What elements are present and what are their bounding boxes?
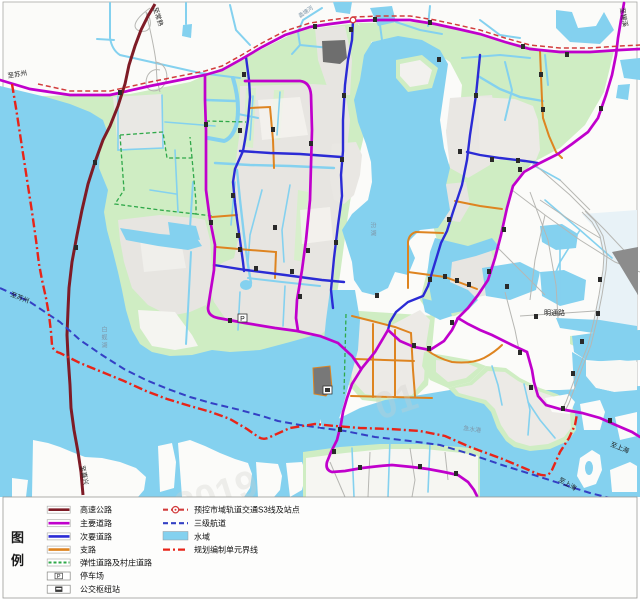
svg-text:图: 图 (11, 530, 24, 545)
svg-text:高速公路: 高速公路 (80, 505, 112, 515)
svg-text:白蚬湖: 白蚬湖 (100, 325, 107, 350)
svg-text:明通路: 明通路 (544, 308, 565, 317)
svg-text:次要道路: 次要道路 (80, 531, 112, 541)
svg-text:公交枢纽站: 公交枢纽站 (80, 584, 120, 594)
svg-text:规划编制单元界线: 规划编制单元界线 (194, 545, 258, 555)
svg-text:支路: 支路 (80, 545, 96, 555)
svg-text:弹性道路及村庄道路: 弹性道路及村庄道路 (80, 558, 152, 568)
svg-text:P: P (240, 316, 245, 323)
svg-text:主要道路: 主要道路 (80, 518, 112, 528)
svg-text:水域: 水域 (194, 531, 210, 541)
svg-text:三级航道: 三级航道 (194, 518, 226, 528)
svg-text:预控市域轨道交通S3线及站点: 预控市域轨道交通S3线及站点 (194, 505, 300, 515)
svg-text:停车场: 停车场 (80, 571, 104, 581)
svg-text:P: P (57, 574, 61, 580)
svg-text:例: 例 (11, 553, 24, 568)
svg-text:汾湖: 汾湖 (369, 221, 376, 238)
